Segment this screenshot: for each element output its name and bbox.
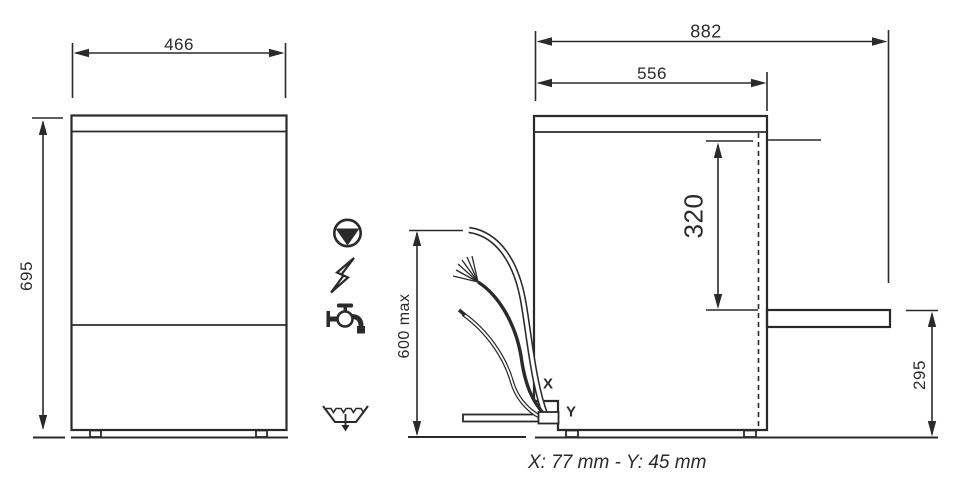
dim-label-295: 295: [910, 360, 930, 390]
pump-icon: [334, 220, 360, 246]
electricity-icon: [331, 258, 354, 293]
utility-icons: [323, 220, 368, 432]
technical-drawing: 466 695 882 556 320 295 600 max X Y X: 7…: [0, 0, 969, 496]
dim-label-320: 320: [679, 194, 710, 239]
water-tap-icon: [327, 304, 366, 334]
open-door-shelf: [767, 310, 890, 327]
hose-connector-tip: [459, 310, 465, 315]
dim-label-695: 695: [17, 261, 37, 291]
drawing-lines: [0, 0, 969, 496]
dim-label-556: 556: [637, 64, 667, 84]
side-left-foot: [566, 431, 578, 438]
label-y: Y: [566, 404, 576, 421]
front-view: [72, 116, 287, 438]
drain-outlet-box: [539, 412, 559, 424]
side-right-foot: [744, 431, 756, 438]
dim-label-882: 882: [690, 22, 722, 43]
label-x: X: [543, 376, 553, 393]
side-view: [534, 116, 890, 437]
dim-600max-lines: [409, 231, 463, 437]
ground-lines: [33, 437, 938, 438]
dim-label-466: 466: [164, 35, 194, 55]
front-left-foot: [90, 431, 101, 438]
drain-icon: [323, 406, 368, 432]
drain-position-caption: X: 77 mm - Y: 45 mm: [528, 452, 706, 474]
dim-label-600max: 600 max: [396, 294, 414, 359]
front-right-foot: [256, 431, 267, 438]
floor-drain-pipe: [463, 415, 539, 422]
frayed-wires: [453, 256, 478, 282]
